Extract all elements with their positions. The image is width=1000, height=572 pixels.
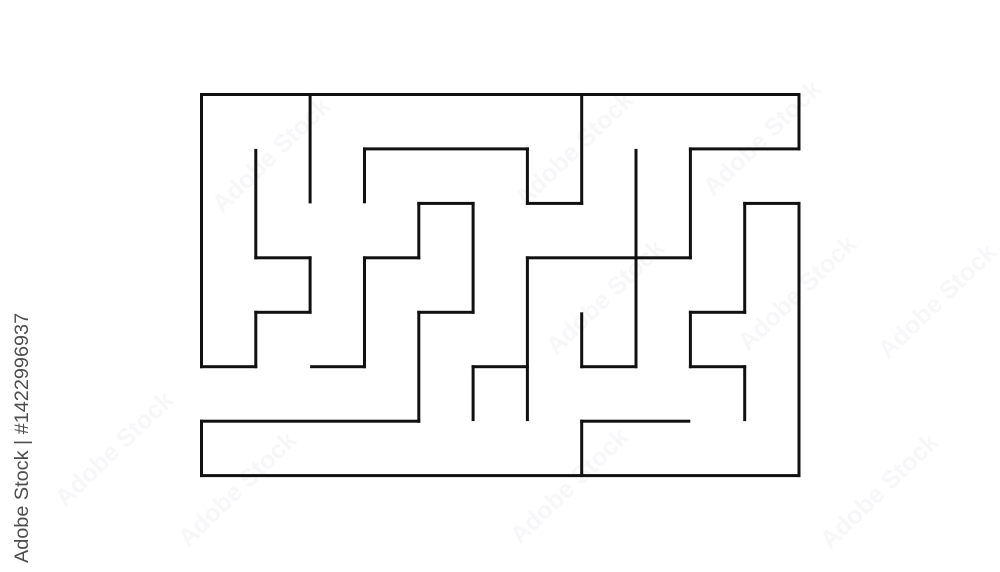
svg-text:Adobe Stock | #1422996937: Adobe Stock | #1422996937 [11, 313, 33, 563]
